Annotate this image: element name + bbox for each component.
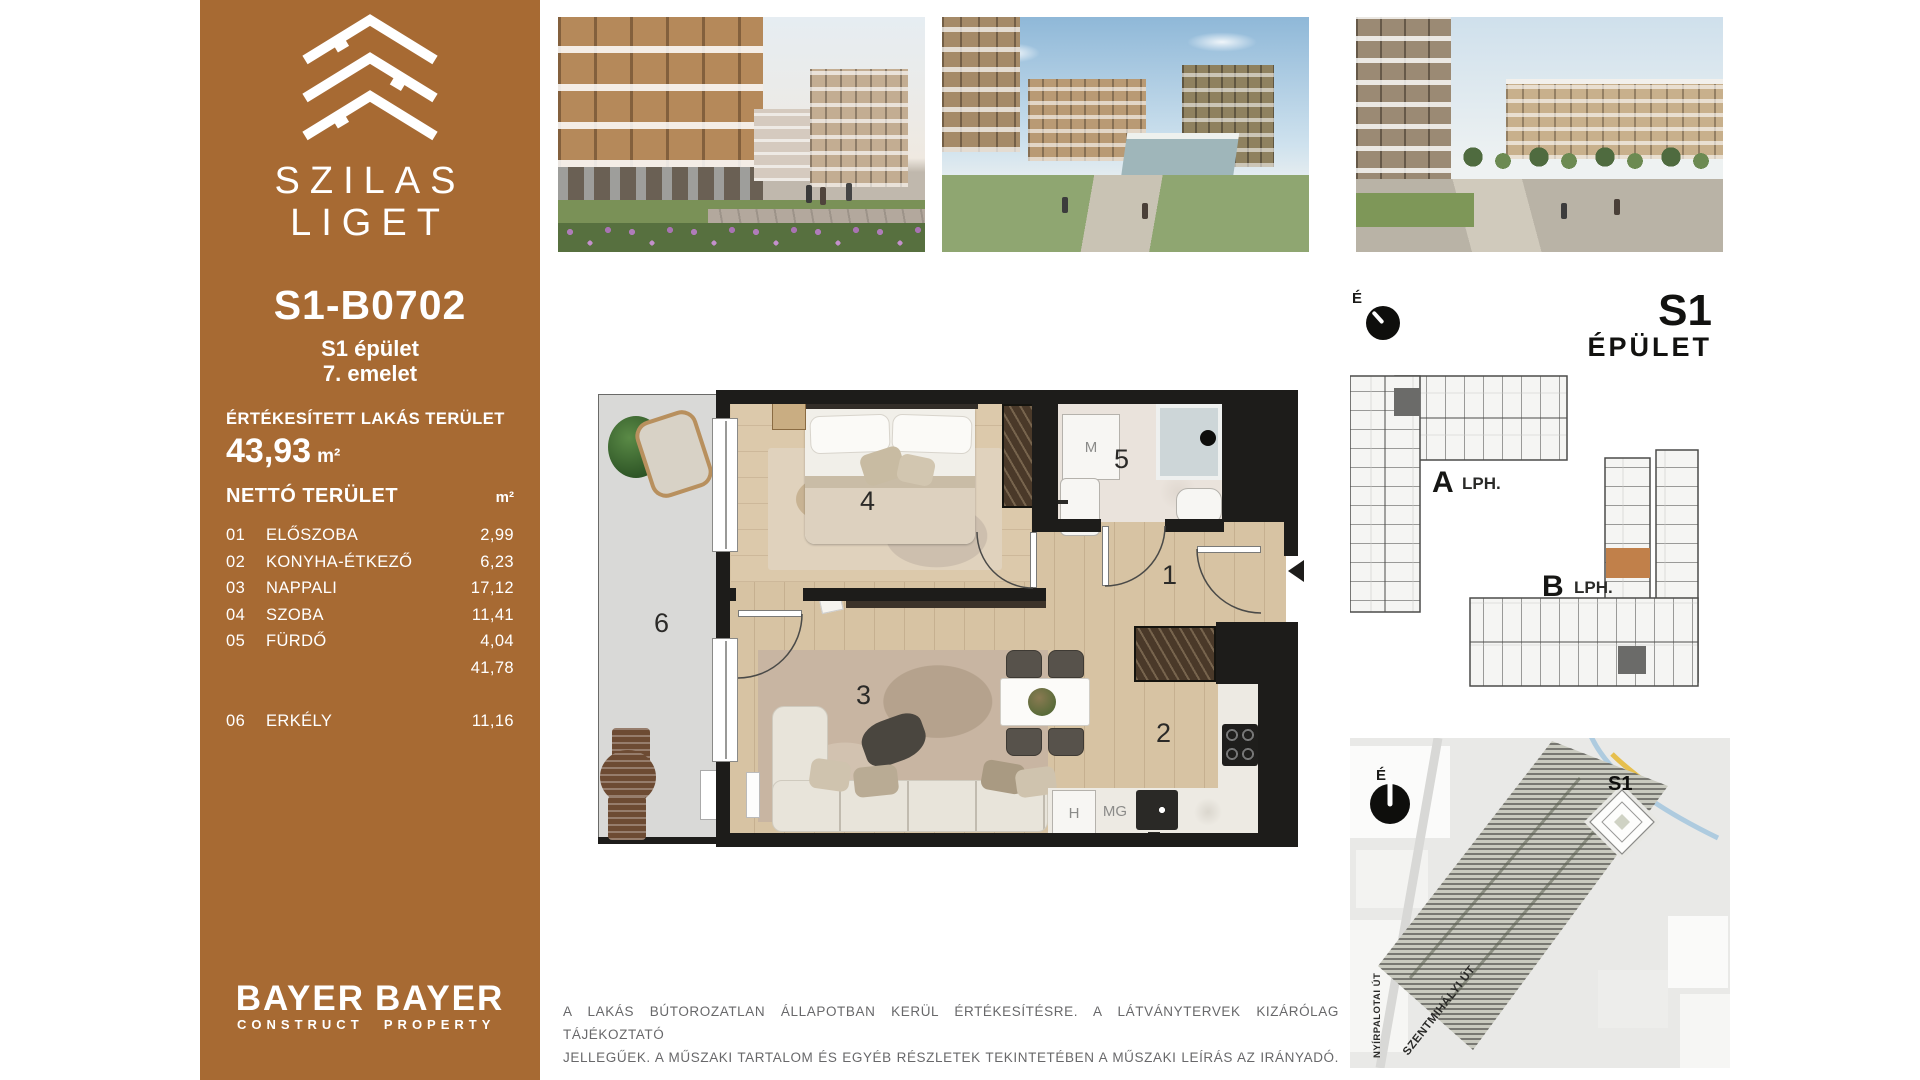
room-number-living: 3 [856, 680, 871, 711]
room-num: 04 [226, 606, 266, 625]
table-row: 03 NAPPALI 17,12 [226, 579, 514, 606]
bayer-construct-logo: BAYER CONSTRUCT [236, 982, 365, 1032]
room-area: 17,12 [471, 579, 514, 598]
floor-key-plan: A LPH. B LPH. [1350, 372, 1730, 702]
map-north-label: É [1376, 767, 1386, 784]
room-number-bedroom: 4 [860, 486, 875, 517]
table-row: 05 FÜRDŐ 4,04 [226, 632, 514, 659]
room-num: 05 [226, 632, 266, 651]
building-title-block: S1 ÉPÜLET [1540, 290, 1712, 362]
person [1561, 203, 1567, 219]
stair-core-b [1618, 646, 1646, 674]
person [1614, 199, 1620, 215]
room-name: FÜRDŐ [266, 632, 480, 651]
brand-line-1: SZILAS [200, 160, 540, 202]
room-name: SZOBA [266, 606, 472, 625]
net-area-unit: m² [496, 489, 514, 506]
building-facade [558, 17, 763, 167]
room-num: 03 [226, 579, 266, 598]
room-area: 2,99 [480, 526, 514, 545]
sidebar: SZILAS LIGET S1-B0702 S1 épület 7. emele… [200, 0, 540, 1080]
sold-area-label: ÉRTÉKESÍTETT LAKÁS TERÜLET [226, 410, 505, 429]
sold-area-value: 43,93m² [226, 432, 340, 471]
map-building [1680, 994, 1730, 1068]
person [806, 185, 812, 203]
render-photo-2 [942, 17, 1309, 252]
flower-bed [558, 223, 925, 252]
room-num: 02 [226, 553, 266, 572]
person [846, 183, 852, 201]
brand-line-2: LIGET [200, 202, 540, 244]
logo-sub: PROPERTY [375, 1017, 504, 1032]
map-building [1668, 916, 1728, 988]
person [820, 187, 826, 205]
room-area: 6,23 [480, 553, 514, 572]
park-ground [942, 175, 1309, 252]
bayer-property-logo: BAYER PROPERTY [375, 982, 504, 1032]
room-area: 11,41 [472, 606, 514, 625]
unit-code: S1-B0702 [200, 282, 540, 329]
brand-title: SZILAS LIGET [200, 160, 540, 244]
right-building [810, 69, 908, 187]
apartment-floorplan: H MG M [596, 388, 1306, 853]
person [1062, 197, 1068, 213]
s1-map-label: S1 [1608, 773, 1632, 795]
room-num: 01 [226, 526, 266, 545]
stair-a-suffix: LPH. [1462, 474, 1501, 493]
tree-row [1451, 135, 1723, 179]
site-map: S1 É NYÍRPALOTAI ÚT SZENTMIHÁLYI ÚT [1350, 738, 1730, 1068]
developer-logos: BAYER CONSTRUCT BAYER PROPERTY [216, 982, 524, 1032]
net-area-header: NETTÓ TERÜLET m² [226, 485, 514, 508]
room-number-bath: 5 [1114, 444, 1129, 475]
table-row: 02 KONYHA-ÉTKEZŐ 6,23 [226, 553, 514, 580]
street-name-vertical: NYÍRPALOTAI ÚT [1371, 973, 1383, 1058]
floor-name: 7. emelet [200, 361, 540, 387]
brochure-page: SZILAS LIGET S1-B0702 S1 épület 7. emele… [0, 0, 1920, 1080]
table-row: 04 SZOBA 11,41 [226, 606, 514, 633]
room-name: KONYHA-ÉTKEZŐ [266, 553, 480, 572]
render-photo-1 [558, 17, 925, 252]
logo-brand: BAYER [375, 982, 504, 1016]
stair-b-suffix: LPH. [1574, 578, 1613, 597]
disclaimer-line-2: JELLEGŰEK. A MŰSZAKI TARTALOM ÉS EGYÉB R… [563, 1046, 1339, 1069]
room-name: ELŐSZOBA [266, 526, 480, 545]
room-area: 4,04 [480, 632, 514, 651]
lawn [1356, 193, 1474, 227]
room-num: 06 [226, 712, 266, 731]
room-number-hall: 1 [1162, 560, 1177, 591]
person [1142, 203, 1148, 219]
table-total-row: 41,78 [226, 659, 514, 686]
disclaimer-line-1: A LAKÁS BÚTOROZATLAN ÁLLAPOTBAN KERÜL ÉR… [563, 1000, 1339, 1046]
building-subtitle: ÉPÜLET [1540, 332, 1712, 362]
szilas-liget-logo-icon [285, 12, 455, 154]
room-number-kitchen: 2 [1156, 718, 1171, 749]
building-title: S1 [1540, 290, 1712, 332]
table-row-balcony: 06 ERKÉLY 11,16 [226, 712, 514, 739]
cloud [1172, 25, 1272, 59]
logo-brand: BAYER [236, 982, 365, 1016]
net-total-value: 41,78 [471, 659, 514, 678]
sold-area-unit: m² [317, 446, 340, 467]
room-number-balcony: 6 [654, 608, 669, 639]
far-building [754, 109, 816, 181]
disclaimer: A LAKÁS BÚTOROZATLAN ÁLLAPOTBAN KERÜL ÉR… [563, 1000, 1339, 1069]
map-building [1598, 970, 1668, 1028]
north-label: É [1352, 290, 1362, 307]
render-photo-3 [1356, 17, 1723, 252]
sold-area-number: 43,93 [226, 432, 311, 470]
room-name: ERKÉLY [266, 712, 472, 731]
door-swing-overlay [596, 388, 1306, 853]
logo-sub: CONSTRUCT [236, 1017, 365, 1032]
room-area: 11,16 [472, 712, 514, 731]
stair-b-letter: B [1542, 570, 1564, 603]
glass-pavilion [1121, 133, 1239, 179]
north-compass-icon [1366, 306, 1400, 340]
net-area-label: NETTÓ TERÜLET [226, 485, 398, 508]
stair-a-letter: A [1432, 466, 1454, 499]
table-row: 01 ELŐSZOBA 2,99 [226, 526, 514, 553]
room-area-table: 01 ELŐSZOBA 2,99 02 KONYHA-ÉTKEZŐ 6,23 0… [226, 526, 514, 738]
room-name: NAPPALI [266, 579, 471, 598]
building-name: S1 épület [200, 336, 540, 362]
highlighted-unit [1606, 548, 1650, 578]
stair-core-a [1394, 388, 1420, 416]
building-left [942, 17, 1020, 152]
